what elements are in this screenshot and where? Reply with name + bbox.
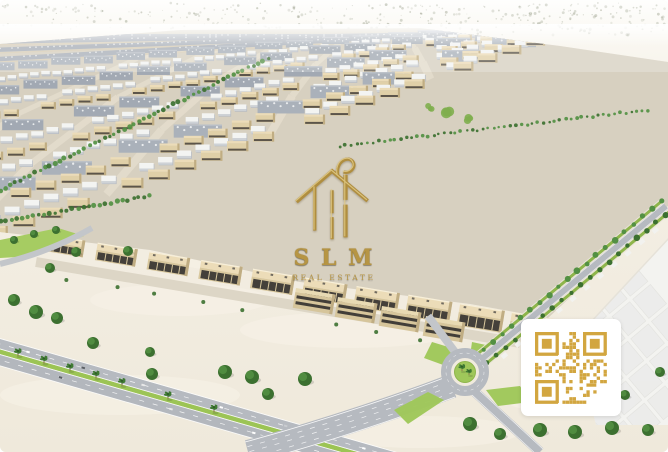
qr-code-icon — [535, 332, 607, 404]
aerial-render-photo: S L M REAL ESTATE — [0, 0, 668, 452]
qr-card — [521, 319, 621, 416]
